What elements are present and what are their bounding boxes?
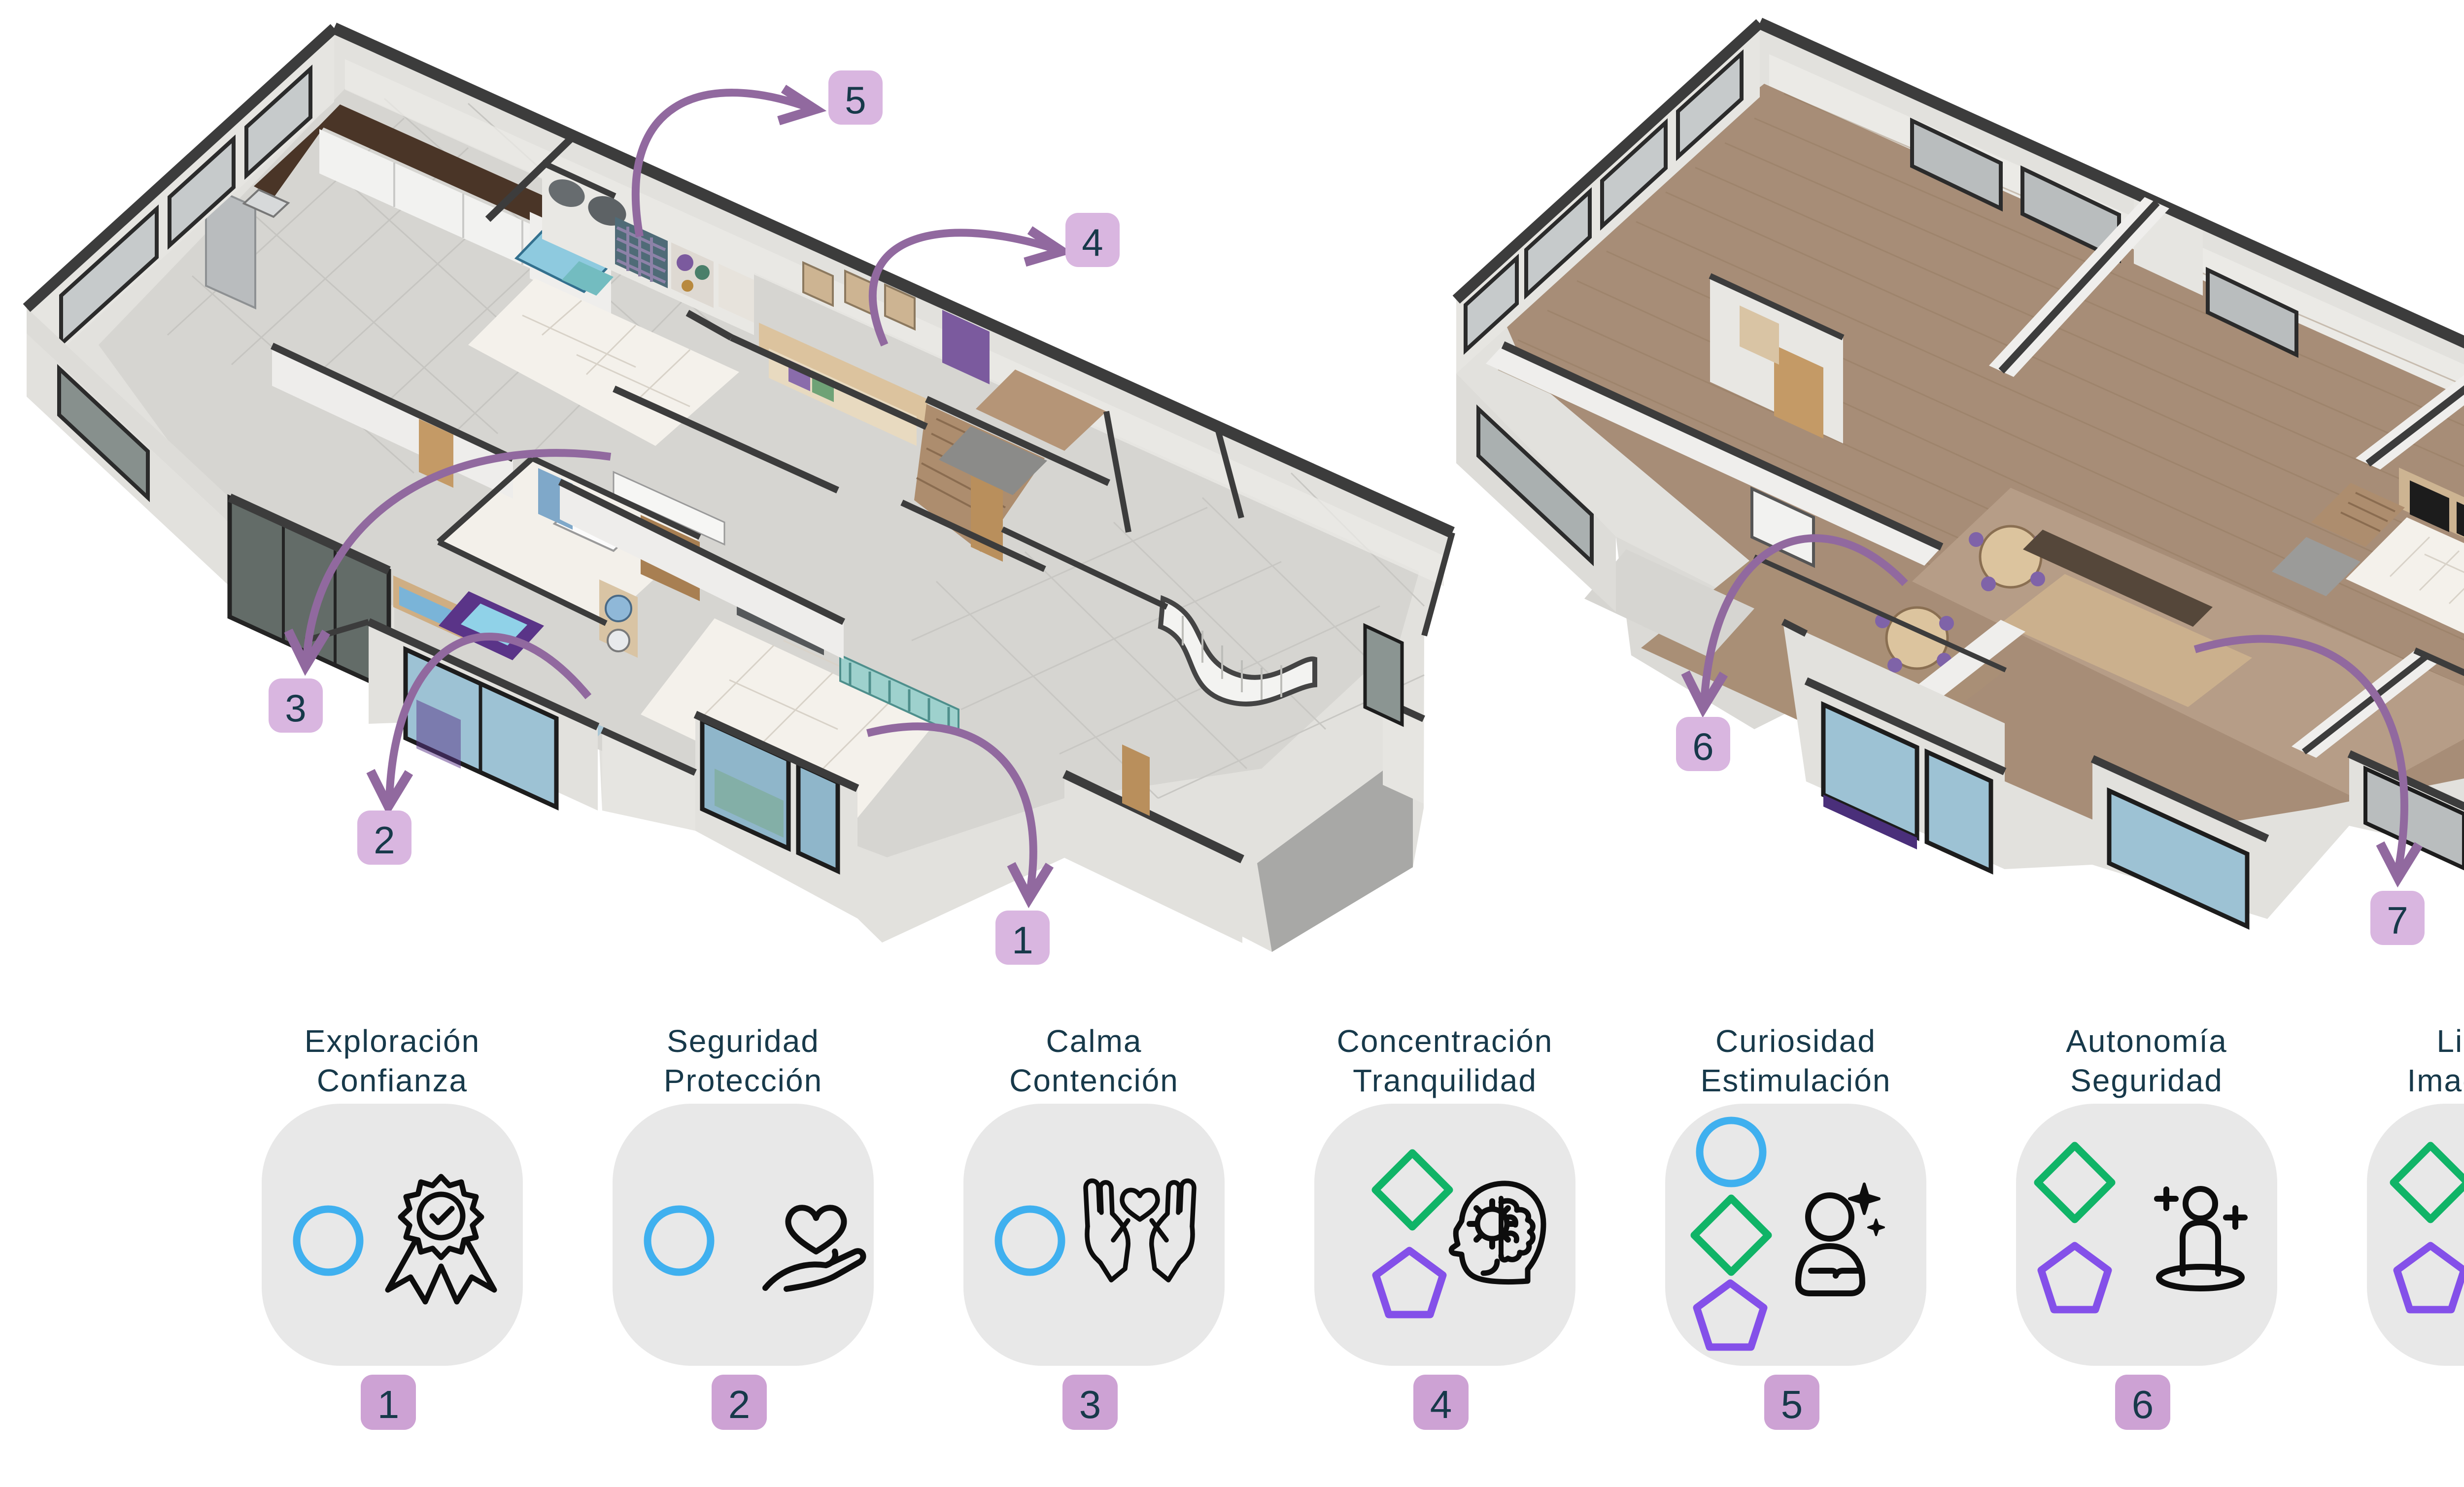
svg-text:3: 3: [285, 686, 306, 730]
svg-text:4: 4: [1082, 221, 1103, 264]
svg-text:Exploración: Exploración: [305, 1023, 480, 1059]
svg-text:Autonomía: Autonomía: [2066, 1023, 2227, 1059]
svg-text:6: 6: [1692, 725, 1713, 768]
svg-text:Concentración: Concentración: [1337, 1023, 1553, 1059]
svg-text:Calma: Calma: [1046, 1023, 1142, 1059]
svg-text:2: 2: [728, 1383, 751, 1426]
svg-text:3: 3: [1079, 1383, 1101, 1426]
svg-text:Protección: Protección: [664, 1063, 822, 1098]
svg-text:Imaginación: Imaginación: [2407, 1063, 2464, 1098]
svg-text:Curiosidad: Curiosidad: [1715, 1023, 1876, 1059]
svg-text:1: 1: [1012, 918, 1033, 962]
svg-text:5: 5: [1781, 1383, 1803, 1426]
svg-text:2: 2: [374, 818, 395, 862]
svg-text:Seguridad: Seguridad: [667, 1023, 820, 1059]
svg-text:Libertad: Libertad: [2436, 1023, 2464, 1059]
svg-text:Tranquilidad: Tranquilidad: [1353, 1063, 1537, 1098]
svg-text:5: 5: [845, 78, 866, 122]
svg-text:Contención: Contención: [1009, 1063, 1179, 1098]
svg-text:1: 1: [377, 1383, 400, 1426]
svg-text:7: 7: [2387, 899, 2408, 942]
svg-text:Confianza: Confianza: [317, 1063, 468, 1098]
svg-text:4: 4: [1430, 1383, 1452, 1426]
svg-text:Seguridad: Seguridad: [2070, 1063, 2223, 1098]
svg-text:6: 6: [2132, 1383, 2154, 1426]
svg-text:Estimulación: Estimulación: [1701, 1063, 1891, 1098]
